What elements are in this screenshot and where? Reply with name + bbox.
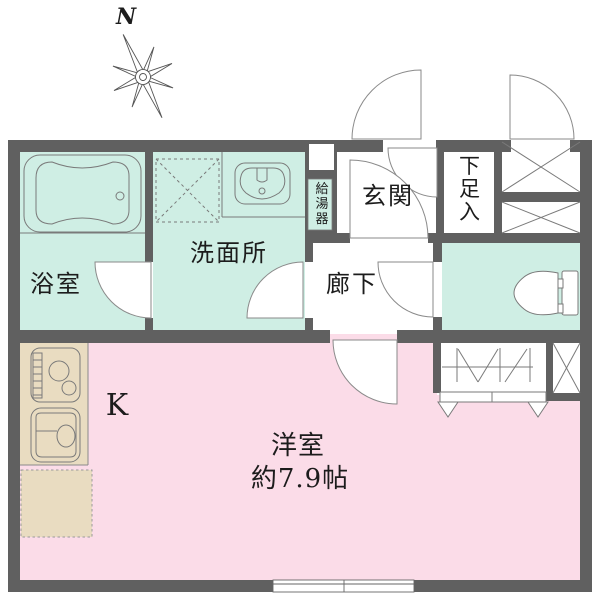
western-room-size-label: 約7.9帖 [251, 466, 349, 492]
western-room-label: 洋室 [271, 433, 325, 459]
toilet-door-opening [433, 262, 442, 317]
shoe-storage-label: 下足入 [458, 155, 479, 224]
compass-rose [94, 21, 191, 131]
washroom-door-opening [305, 262, 313, 318]
side-door-opening [511, 140, 570, 152]
floor-plan-drawing [0, 0, 600, 600]
side-utility-door-arc [510, 75, 574, 139]
hallway-label: 廊下 [326, 272, 378, 296]
shaft-box [309, 144, 334, 170]
entrance-label: 玄関 [362, 184, 414, 208]
kitchen-counter [20, 343, 88, 465]
water-heater-label: 給湯器 [314, 182, 327, 227]
room-fills [10, 142, 590, 588]
closet-door-front [440, 392, 546, 402]
toilet [514, 271, 578, 315]
front-entry-door-arc [352, 70, 421, 139]
floor-plan: N 浴室 洗面所 給湯器 玄関 下足入 廊下 K 洋室 約7.9帖 [0, 0, 600, 600]
kitchen-label: K [106, 391, 128, 421]
bathroom-label: 浴室 [30, 272, 82, 296]
washroom-label: 洗面所 [190, 241, 268, 265]
north-label: N [116, 6, 136, 28]
refrigerator-space [21, 470, 92, 537]
window [273, 580, 414, 592]
